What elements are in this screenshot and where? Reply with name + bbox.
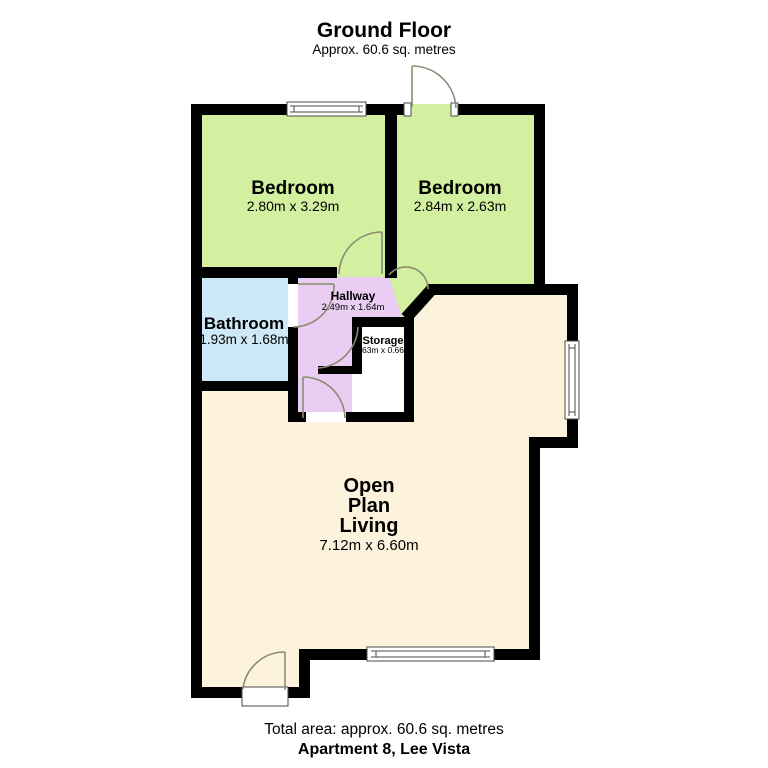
bathroom-dims: 1.93m x 1.68m (199, 332, 288, 347)
window-living-right (565, 341, 579, 419)
window-bedroom1-top (287, 102, 366, 116)
page-title: Ground Floor (317, 19, 451, 42)
living-dims: 7.12m x 6.60m (319, 537, 418, 554)
bathroom-label: Bathroom (204, 314, 284, 333)
bedroom1-label: Bedroom (251, 178, 334, 199)
wall-hallway-bottom-b (345, 412, 414, 422)
wall-top-segment-c (457, 104, 545, 115)
wall-bathroom-right-lower (288, 327, 298, 422)
footer-total-area: Total area: approx. 60.6 sq. metres (264, 721, 504, 738)
footer-address: Apartment 8, Lee Vista (298, 741, 470, 758)
wall-exterior-right-upper-a (567, 284, 578, 342)
page-subtitle: Approx. 60.6 sq. metres (312, 42, 456, 57)
floorplan-page: Ground Floor Approx. 60.6 sq. metres Bed… (0, 0, 768, 768)
floorplan-drawing: Ground Floor Approx. 60.6 sq. metres Bed… (0, 0, 768, 768)
wall-bedroom1-bottom (191, 267, 337, 278)
bedroom2-label: Bedroom (418, 178, 501, 199)
wall-exterior-left (191, 104, 202, 698)
storage-dims: 1.63m x 0.66m (355, 345, 411, 355)
window-living-bottom (367, 647, 494, 661)
hallway-dims: 2.49m x 1.64m (322, 302, 385, 313)
hallway-label: Hallway (331, 289, 376, 303)
wall-bottom-lower-a (191, 687, 243, 698)
wall-bathroom-bottom (191, 381, 298, 391)
wall-bottom-lower-b (287, 687, 310, 698)
bedroom1-dims: 2.80m x 3.29m (247, 198, 340, 214)
wall-hallway-bottom-a (288, 412, 307, 422)
living-label-line2: Plan (348, 495, 390, 517)
wall-storage-right (404, 317, 414, 422)
wall-bedroom2-right (534, 104, 545, 295)
wall-bottom-upper-b (493, 649, 540, 660)
wall-bathroom-right-upper (288, 277, 298, 284)
living-label-line1: Open (343, 475, 394, 497)
living-label-line3: Living (340, 515, 399, 537)
wall-top-segment-a (191, 104, 288, 115)
wall-exterior-right-lower (529, 437, 540, 660)
wall-bedroom-divider (385, 104, 397, 278)
wall-bedroom2-bottom (428, 284, 545, 295)
bedroom2-dims: 2.84m x 2.63m (414, 198, 507, 214)
